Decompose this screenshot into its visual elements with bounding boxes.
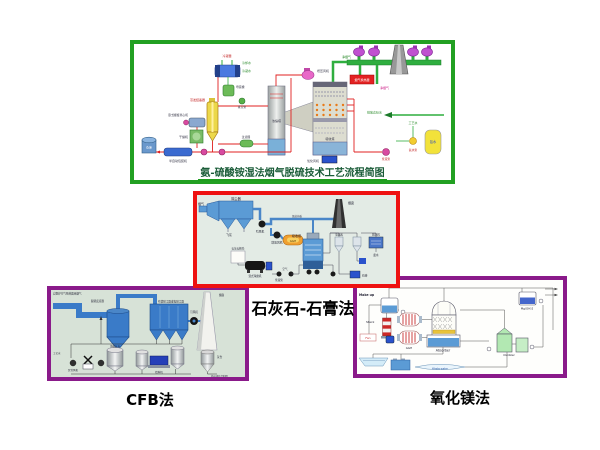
ammonia-flow-diagram: 烟气换热器 净烟气 净烟气 排放达标水 工艺水 氨水泵 氨水 bbox=[134, 44, 451, 165]
small-pump-box bbox=[359, 258, 366, 264]
stack: 烟囱 bbox=[197, 292, 225, 350]
cooling-water-label: 冷却水 bbox=[242, 60, 251, 65]
arrow-out-2 bbox=[555, 294, 559, 296]
slurry-pump-label: 浆液泵 bbox=[275, 278, 283, 282]
dryer-label: 干燥机 bbox=[179, 134, 188, 139]
packer-label: 半自动包装机 bbox=[169, 158, 187, 163]
limestone-flow-diagram: 除尘器 烟气 飞灰 引风机 增压风机 bbox=[197, 195, 396, 284]
cfb-flow-diagram: 自锅炉空气预热器来烟气 脱硫反应器 布袋除尘器或电除尘器 引风机 bbox=[51, 290, 245, 377]
fan-box: Fan bbox=[360, 334, 376, 341]
oxidation-fan: 氧化风机 bbox=[307, 156, 337, 163]
air-label: 空气 bbox=[282, 267, 288, 271]
booster-fan: 增压风机 bbox=[302, 68, 329, 80]
esp-unit: 除尘器 bbox=[199, 196, 253, 229]
clean-gas-label: 净烟气 bbox=[342, 54, 351, 59]
panel-limestone-gypsum: 除尘器 烟气 飞灰 引风机 增压风机 bbox=[193, 191, 400, 288]
cfb-title: CFB法 bbox=[100, 389, 200, 410]
mother-liquor-tank: 母液槽 bbox=[223, 77, 245, 96]
water-label: 工艺水 bbox=[53, 351, 61, 355]
vacuum-pump-label: 真空泵 bbox=[238, 105, 247, 109]
blower-label: 罗茨风机 bbox=[68, 368, 79, 372]
slurry-tank bbox=[266, 262, 272, 270]
crystal-pump-1 bbox=[201, 149, 207, 155]
gas-reheater: 烟气换热器 bbox=[350, 75, 374, 84]
heater-label: 烟气换热器 bbox=[354, 77, 369, 82]
filter-label: 过滤器 bbox=[242, 135, 251, 139]
slurry-label: Mg(OH)2 bbox=[521, 307, 534, 311]
slurry-tank: Mg(OH)2 bbox=[519, 292, 543, 311]
feeder-label: 给料机 bbox=[155, 370, 163, 374]
vacuum-pump: 真空泵 bbox=[238, 98, 247, 109]
cyclone-label: 旋流器 bbox=[335, 233, 343, 237]
clean-gas-duct bbox=[333, 60, 441, 84]
absorber-label: Absorber bbox=[436, 349, 451, 353]
absorber-tower: 吸收塔 bbox=[313, 82, 347, 155]
gypsum-label: 石膏 bbox=[362, 274, 368, 278]
oxidizer-tanks: Oxidizer bbox=[487, 328, 534, 357]
mill-label: 湿式球磨机 bbox=[249, 274, 262, 278]
flue-gas-label: 烟气 bbox=[198, 201, 204, 206]
process-water-pump: 工艺水 氨水泵 bbox=[408, 120, 417, 152]
filter-label: 布袋除尘器或电除尘器 bbox=[158, 300, 184, 304]
tower-duct bbox=[285, 102, 313, 132]
slurry-pump bbox=[383, 149, 390, 156]
booster-fan-label: 增压风机 bbox=[317, 68, 329, 73]
filter-unit: 过滤器 bbox=[240, 135, 253, 147]
gypsum-out: 石膏 bbox=[350, 271, 368, 278]
dewater-label: 脱水机 bbox=[372, 233, 380, 237]
fly-ash-label: 飞灰 bbox=[226, 232, 232, 237]
limestone-silo-label: 石灰石粉仓 bbox=[232, 247, 245, 251]
stack: 烟囱 bbox=[332, 199, 354, 228]
concentration-tower: 浓缩塔 bbox=[268, 86, 285, 155]
condenser-label: 冷凝器 bbox=[222, 53, 231, 58]
ammonia-caption-text: 氨-硫酸铵湿法烟气脱硫技术工艺流程简图 bbox=[198, 168, 386, 181]
cfb-reactor: 脱硫反应器 bbox=[91, 299, 129, 350]
warehouse-label: 仓库 bbox=[146, 145, 152, 150]
absorber-tower: Absorber bbox=[427, 301, 460, 353]
damper-label: 烟道挡板 bbox=[292, 214, 303, 218]
lime-silos: 消石灰仓 bbox=[107, 344, 184, 371]
oxidation-fan bbox=[331, 272, 336, 277]
mgo-flow-diagram: Make up Stack Fan bbox=[357, 280, 563, 374]
stack bbox=[390, 45, 408, 74]
slurry-pumps: 空气 浆液泵 bbox=[275, 267, 293, 282]
panel-cfb-process: 自锅炉空气预热器来烟气 脱硫反应器 布袋除尘器或电除尘器 引风机 bbox=[47, 286, 249, 381]
id-fan: 引风机 bbox=[190, 310, 198, 325]
bag-filter: 布袋除尘器或电除尘器 bbox=[150, 300, 188, 341]
ammonia-tank: 氨水 bbox=[396, 130, 441, 154]
discharge-label: 排放达标水 bbox=[367, 110, 382, 115]
waste-water-label: 废水 bbox=[373, 253, 379, 257]
condensate-label: 冷凝水 bbox=[242, 68, 251, 73]
condenser: 冷凝器 冷却水 冷凝水 bbox=[215, 53, 251, 77]
discharge-arrow: 排放达标水 bbox=[367, 110, 444, 119]
id-fan: 引风机 bbox=[256, 221, 266, 234]
id-fan-label: 引风机 bbox=[256, 230, 265, 234]
process-water-label: 工艺水 bbox=[408, 120, 417, 125]
recirc-pump bbox=[386, 336, 394, 343]
panel-mgo-process: Make up Stack Fan bbox=[353, 276, 567, 378]
absorber-label: 吸收塔 bbox=[292, 233, 301, 238]
fgd-process-collage: 烟气换热器 净烟气 净烟气 排放达标水 工艺水 氨水泵 氨水 bbox=[0, 0, 600, 450]
stack-label: Stack bbox=[366, 320, 375, 324]
oxidation-fan-label: 氧化风机 bbox=[307, 158, 319, 163]
arrow-out-1 bbox=[555, 288, 559, 290]
absorber-label: 吸收塔 bbox=[325, 136, 334, 141]
ash-out-label: 外运或综合利用 bbox=[211, 374, 228, 377]
reactor-label: 脱硫反应器 bbox=[91, 299, 104, 303]
booster-fan-label: 增压风机 bbox=[271, 241, 282, 245]
esp-label: 除尘器 bbox=[231, 196, 241, 201]
waste-label: Waste water bbox=[432, 367, 449, 371]
crystal-pump-2 bbox=[219, 149, 225, 155]
ggh-label: GGH bbox=[406, 346, 412, 350]
centrifuge-label: 卧式螺旋离心机 bbox=[168, 113, 188, 117]
limestone-title: 石灰石-石膏法 bbox=[230, 295, 376, 319]
slurry-pump-label: 浆液泵 bbox=[382, 157, 391, 161]
id-fan-label: 引风机 bbox=[190, 310, 198, 314]
clean-gas-label-2: 净烟气 bbox=[380, 85, 389, 90]
recirc-pumps bbox=[307, 270, 320, 275]
mixer-valve bbox=[83, 356, 93, 369]
clarifier bbox=[359, 358, 388, 366]
dewatering-unit: 脱水机 废水 bbox=[369, 233, 383, 258]
warehouse-tank: 仓库 bbox=[142, 137, 156, 153]
fly-ash-out: 飞灰 bbox=[226, 229, 244, 237]
ammonia-caption: 氨-硫酸铵湿法烟气脱硫技术工艺流程简图 bbox=[134, 164, 451, 179]
mg-tank bbox=[391, 359, 410, 371]
crystallizer-label: 蒸发结晶器 bbox=[190, 97, 205, 102]
ball-mill: 湿式球磨机 bbox=[245, 261, 265, 278]
limestone-silo: 石灰石粉仓 bbox=[231, 247, 245, 264]
panel-ammonia-process: 烟气换热器 净烟气 净烟气 排放达标水 工艺水 氨水泵 氨水 bbox=[130, 40, 455, 184]
centrifuge: 卧式螺旋离心机 bbox=[168, 113, 205, 127]
inlet-label: 自锅炉空气预热器来烟气 bbox=[53, 292, 82, 296]
dryer: 干燥机 bbox=[179, 130, 203, 143]
ash-silo-label: 灰仓 bbox=[217, 355, 223, 359]
concentrator-label: 浓缩塔 bbox=[272, 118, 281, 123]
ammonia-pump-label: 氨水泵 bbox=[409, 148, 418, 152]
feeder-machine: 给料机 bbox=[148, 356, 170, 374]
packing-machine: 半自动包装机 bbox=[156, 148, 192, 163]
ggh-label: GGH bbox=[290, 239, 296, 243]
o xidizer-label: Oxidizer bbox=[503, 353, 515, 357]
stack-label: 烟囱 bbox=[219, 293, 225, 297]
fan-label: Fan bbox=[365, 336, 370, 340]
lime-silo-label: 消石灰仓 bbox=[110, 344, 121, 348]
mother-tank-label: 母液槽 bbox=[236, 85, 245, 89]
mgo-title: 氧化镁法 bbox=[400, 387, 520, 408]
ash-silo: 灰仓 外运或综合利用 bbox=[201, 350, 228, 377]
waste-water-pond: Waste water bbox=[415, 364, 465, 370]
ggh-reheaters: GGH bbox=[397, 313, 422, 350]
stack-label: 烟囱 bbox=[348, 200, 354, 205]
ammonia-tank-label: 氨水 bbox=[430, 139, 437, 144]
